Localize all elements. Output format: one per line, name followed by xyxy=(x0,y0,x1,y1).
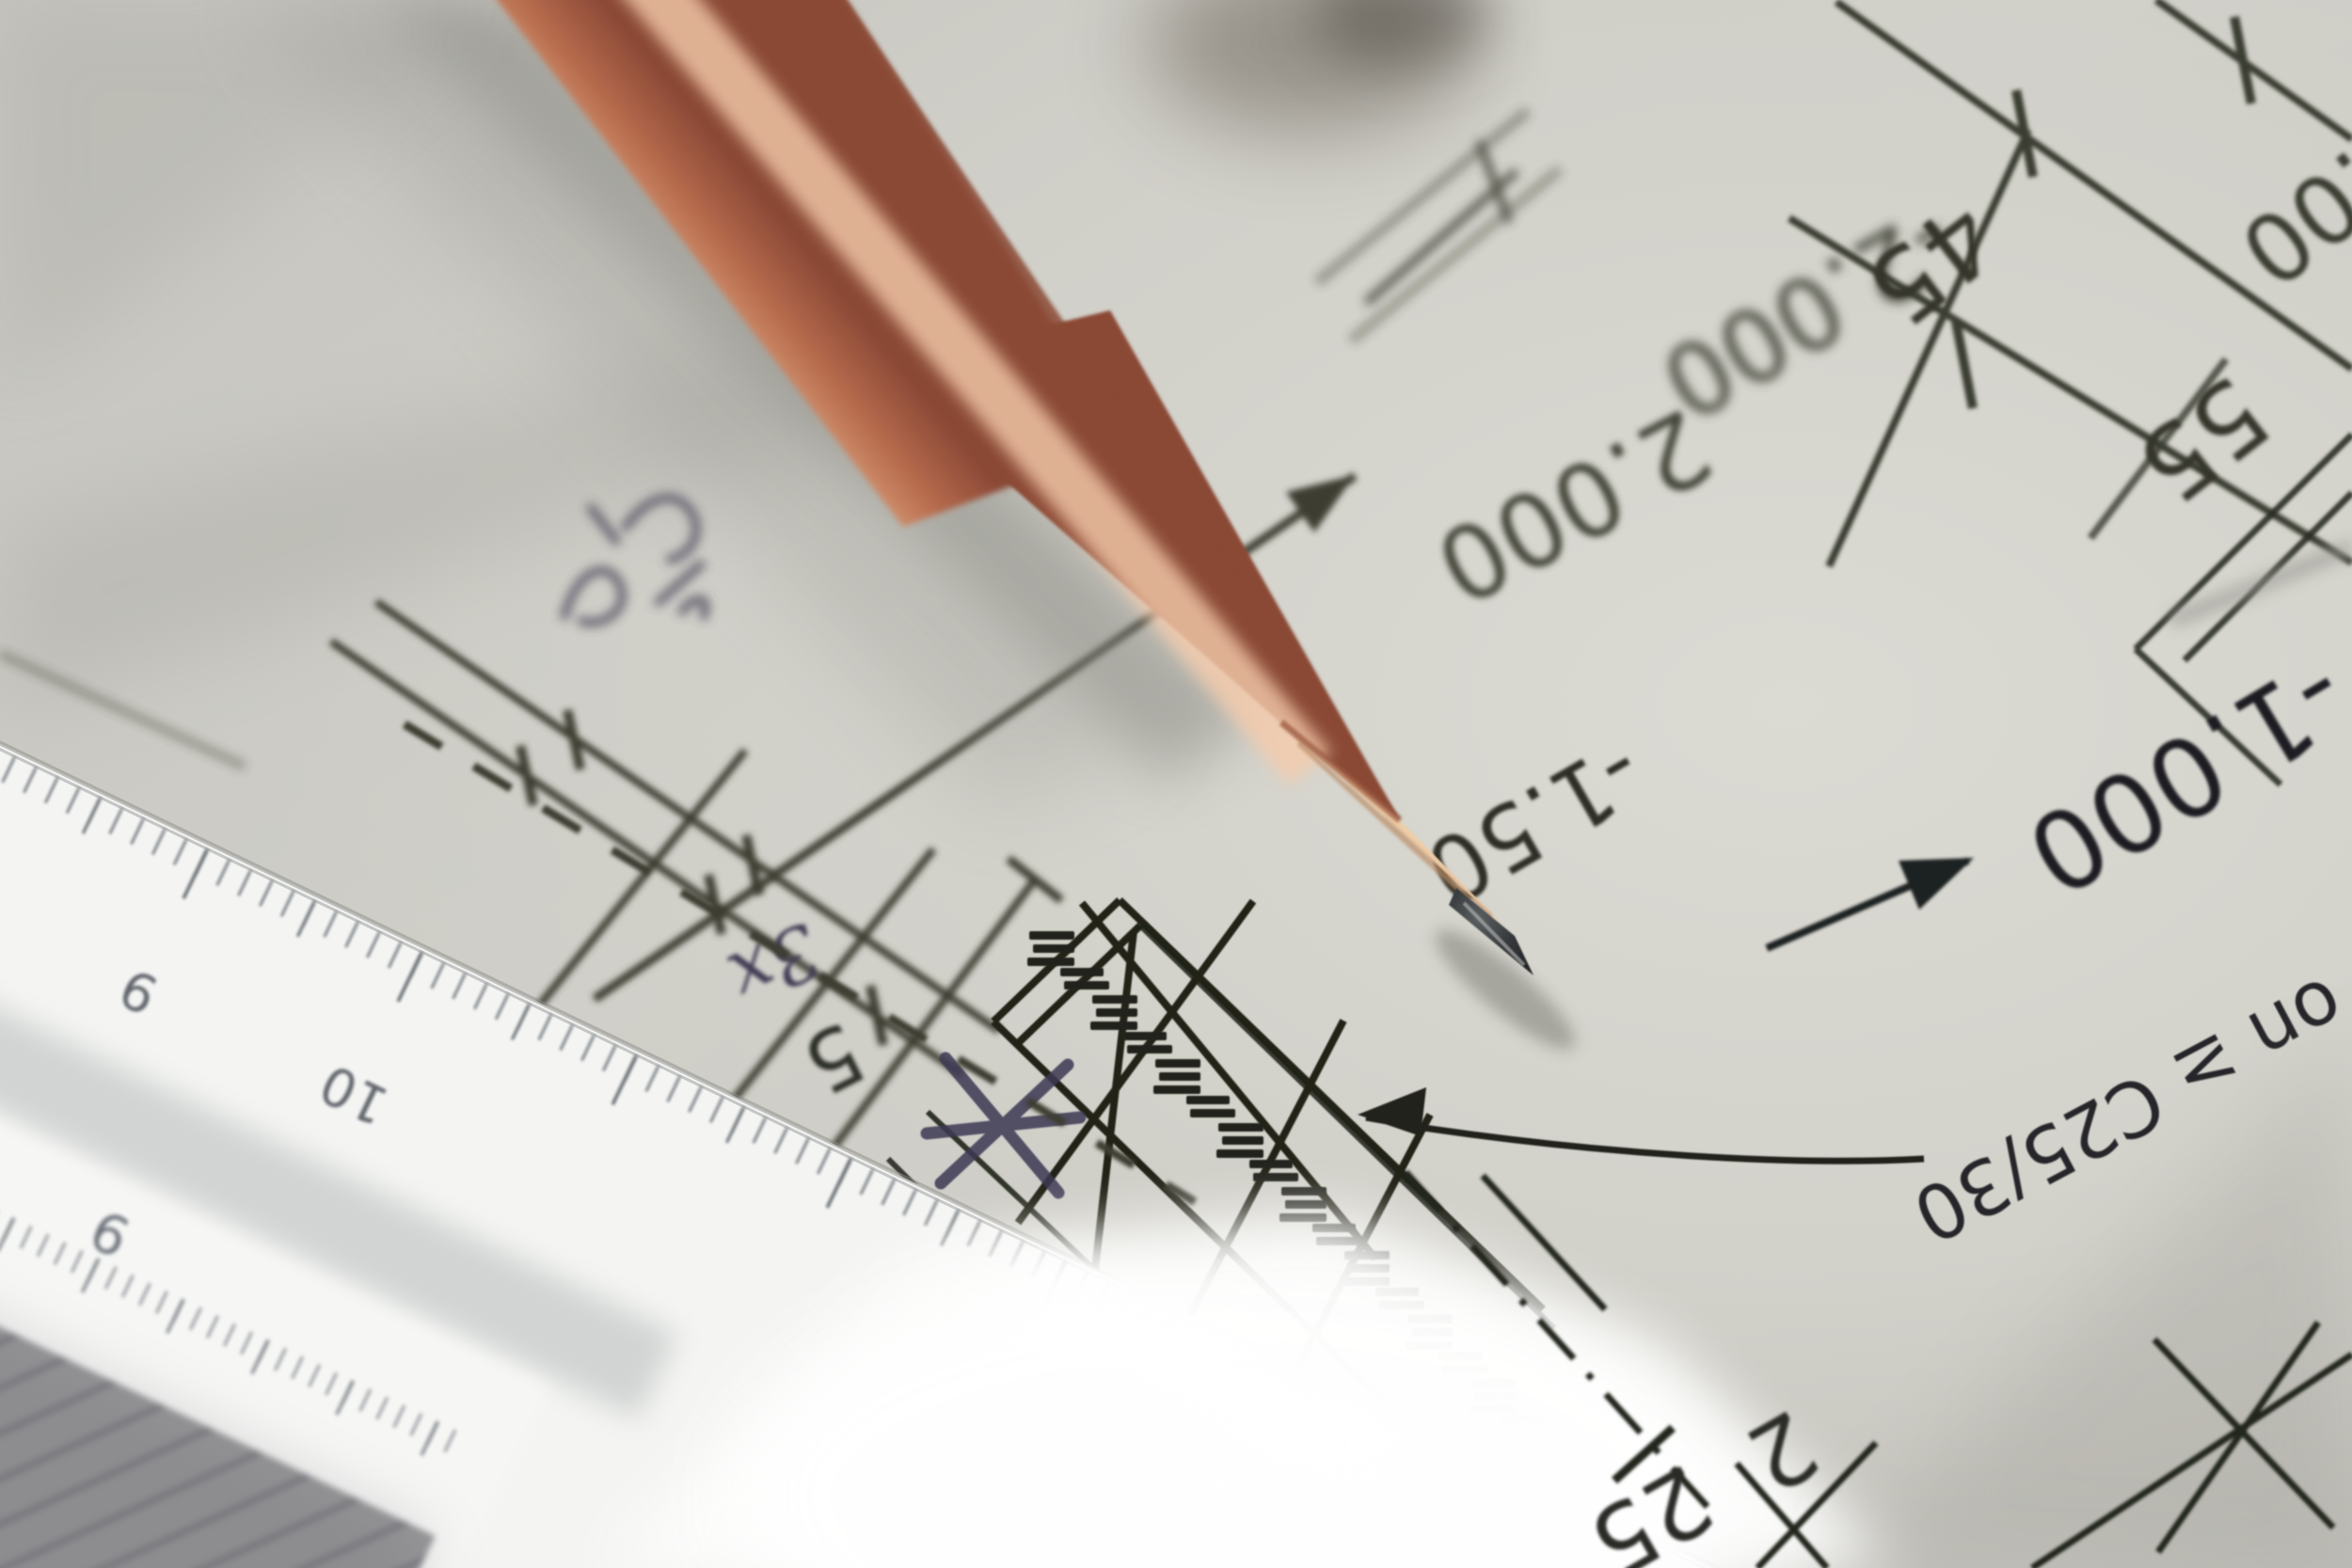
pencil-blueprint-photo: 2.000 -2.000 45 55 1.00 5 3x xyxy=(0,0,2352,1568)
photo-stage: 2.000 -2.000 45 55 1.00 5 3x xyxy=(0,0,2352,1568)
